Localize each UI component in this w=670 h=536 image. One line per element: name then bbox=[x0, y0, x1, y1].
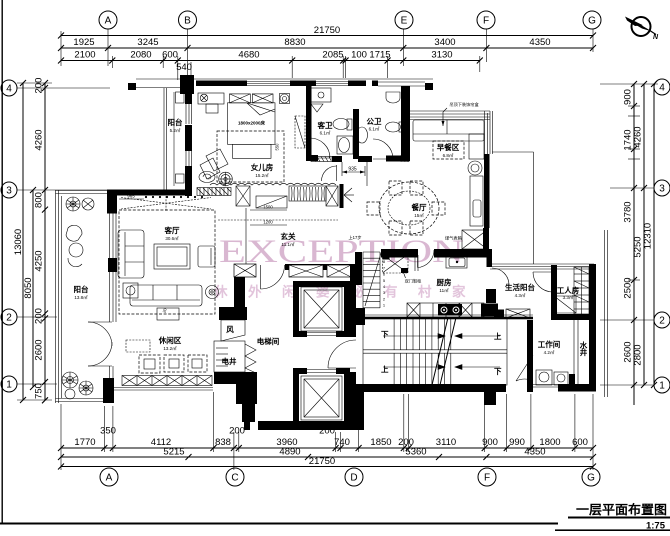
svg-text:公卫: 公卫 bbox=[367, 117, 382, 126]
svg-text:5.2㎡: 5.2㎡ bbox=[170, 127, 181, 133]
svg-text:800: 800 bbox=[34, 192, 45, 208]
svg-text:8830: 8830 bbox=[284, 37, 305, 48]
svg-text:阳台: 阳台 bbox=[74, 284, 89, 294]
svg-text:D: D bbox=[350, 473, 357, 484]
svg-text:4260: 4260 bbox=[34, 129, 45, 150]
svg-text:C: C bbox=[231, 473, 238, 484]
svg-text:G: G bbox=[588, 16, 596, 27]
svg-text:女儿房: 女儿房 bbox=[251, 162, 274, 172]
svg-text:350: 350 bbox=[100, 426, 116, 437]
svg-text:6.1㎡: 6.1㎡ bbox=[320, 130, 331, 136]
svg-text:4: 4 bbox=[659, 83, 665, 94]
svg-text:3110: 3110 bbox=[436, 437, 456, 448]
svg-text:风: 风 bbox=[226, 325, 234, 334]
svg-text:200: 200 bbox=[229, 426, 245, 437]
svg-text:11.1㎡: 11.1㎡ bbox=[282, 241, 295, 247]
svg-text:15㎡: 15㎡ bbox=[414, 212, 424, 218]
svg-text:2080: 2080 bbox=[130, 50, 151, 61]
svg-text:电梯间: 电梯间 bbox=[257, 336, 280, 346]
svg-text:客卫: 客卫 bbox=[317, 120, 333, 130]
svg-text:工人房: 工人房 bbox=[557, 285, 580, 295]
svg-text:4260: 4260 bbox=[633, 126, 644, 147]
svg-text:1200: 1200 bbox=[263, 220, 273, 225]
svg-text:3: 3 bbox=[659, 184, 665, 195]
svg-text:11㎡: 11㎡ bbox=[439, 287, 449, 293]
svg-text:2: 2 bbox=[6, 313, 12, 324]
svg-text:2800: 2800 bbox=[633, 344, 644, 365]
svg-text:540: 540 bbox=[176, 62, 192, 73]
svg-text:休闲区: 休闲区 bbox=[158, 335, 182, 345]
svg-text:3.3㎡: 3.3㎡ bbox=[563, 294, 574, 300]
svg-text:阳台: 阳台 bbox=[168, 117, 183, 127]
svg-text:3400: 3400 bbox=[434, 37, 455, 48]
svg-text:990: 990 bbox=[509, 437, 525, 448]
svg-text:1500: 1500 bbox=[263, 205, 273, 210]
svg-text:21750: 21750 bbox=[309, 456, 335, 467]
svg-text:5215: 5215 bbox=[163, 447, 184, 458]
svg-text:1: 1 bbox=[6, 380, 12, 391]
svg-text:2085: 2085 bbox=[322, 50, 343, 61]
svg-text:900: 900 bbox=[623, 89, 634, 105]
svg-text:B: B bbox=[184, 16, 191, 27]
svg-text:4890: 4890 bbox=[279, 447, 300, 458]
svg-text:下: 下 bbox=[381, 330, 389, 339]
svg-text:1925: 1925 bbox=[73, 37, 94, 48]
svg-text:吊顶下装饰帘盒: 吊顶下装饰帘盒 bbox=[449, 101, 479, 108]
svg-text:4250: 4250 bbox=[34, 250, 45, 271]
svg-text:E: E bbox=[401, 16, 408, 27]
svg-text:4: 4 bbox=[6, 84, 12, 95]
svg-text:1800x2000床: 1800x2000床 bbox=[238, 120, 266, 127]
svg-text:8050: 8050 bbox=[23, 277, 34, 298]
svg-text:1850: 1850 bbox=[370, 437, 391, 448]
svg-text:2500: 2500 bbox=[623, 277, 634, 298]
svg-text:4350: 4350 bbox=[529, 37, 550, 48]
svg-text:G: G bbox=[587, 473, 595, 484]
svg-text:13060: 13060 bbox=[13, 229, 24, 255]
svg-text:工作间: 工作间 bbox=[538, 339, 561, 349]
svg-text:厨房: 厨房 bbox=[437, 277, 452, 287]
svg-text:4.2㎡: 4.2㎡ bbox=[544, 349, 555, 355]
svg-text:玄关: 玄关 bbox=[281, 231, 296, 241]
svg-text:6.8㎡: 6.8㎡ bbox=[443, 152, 454, 158]
svg-text:4680: 4680 bbox=[238, 50, 259, 61]
svg-text:上: 上 bbox=[381, 364, 389, 374]
svg-text:井: 井 bbox=[580, 347, 588, 357]
svg-text:4.3㎡: 4.3㎡ bbox=[515, 292, 526, 298]
svg-text:12310: 12310 bbox=[643, 223, 654, 249]
svg-text:下: 下 bbox=[494, 367, 502, 376]
svg-text:3: 3 bbox=[6, 186, 12, 197]
svg-text:100: 100 bbox=[351, 50, 367, 61]
svg-text:F: F bbox=[484, 473, 490, 484]
svg-text:6.1㎡: 6.1㎡ bbox=[369, 126, 380, 132]
svg-text:13.8㎡: 13.8㎡ bbox=[74, 294, 88, 300]
svg-text:1770: 1770 bbox=[74, 437, 95, 448]
svg-text:A: A bbox=[106, 473, 113, 484]
svg-text:电井: 电井 bbox=[222, 356, 237, 366]
svg-text:965: 965 bbox=[127, 194, 135, 199]
svg-text:15.2㎡: 15.2㎡ bbox=[255, 172, 269, 178]
svg-text:2100: 2100 bbox=[74, 50, 95, 61]
svg-text:4350: 4350 bbox=[524, 447, 545, 458]
svg-text:3130: 3130 bbox=[431, 50, 452, 61]
svg-text:935: 935 bbox=[348, 167, 357, 173]
svg-text:1: 1 bbox=[659, 381, 665, 392]
svg-text:A: A bbox=[105, 16, 112, 27]
svg-text:煤气表箱: 煤气表箱 bbox=[445, 235, 462, 242]
svg-text:2: 2 bbox=[659, 316, 665, 327]
svg-text:早餐区: 早餐区 bbox=[437, 142, 460, 152]
svg-text:838: 838 bbox=[215, 437, 231, 448]
svg-text:F: F bbox=[483, 16, 489, 27]
svg-text:550: 550 bbox=[275, 143, 280, 151]
svg-text:600: 600 bbox=[572, 437, 588, 448]
svg-text:21750: 21750 bbox=[314, 25, 340, 36]
svg-text:客厅: 客厅 bbox=[164, 225, 180, 235]
svg-text:上: 上 bbox=[494, 331, 502, 341]
svg-text:3780: 3780 bbox=[623, 201, 634, 222]
svg-text:生活阳台: 生活阳台 bbox=[505, 282, 535, 292]
svg-text:30.6㎡: 30.6㎡ bbox=[165, 235, 179, 241]
svg-text:餐厅: 餐厅 bbox=[411, 202, 427, 212]
svg-text:2600: 2600 bbox=[34, 339, 45, 360]
svg-text:13.2㎡: 13.2㎡ bbox=[163, 345, 177, 351]
svg-text:一层平面布置图: 一层平面布置图 bbox=[576, 502, 667, 517]
svg-text:上17步: 上17步 bbox=[348, 234, 361, 241]
svg-text:3245: 3245 bbox=[137, 37, 158, 48]
svg-text:双门鞋柜: 双门鞋柜 bbox=[405, 278, 422, 285]
